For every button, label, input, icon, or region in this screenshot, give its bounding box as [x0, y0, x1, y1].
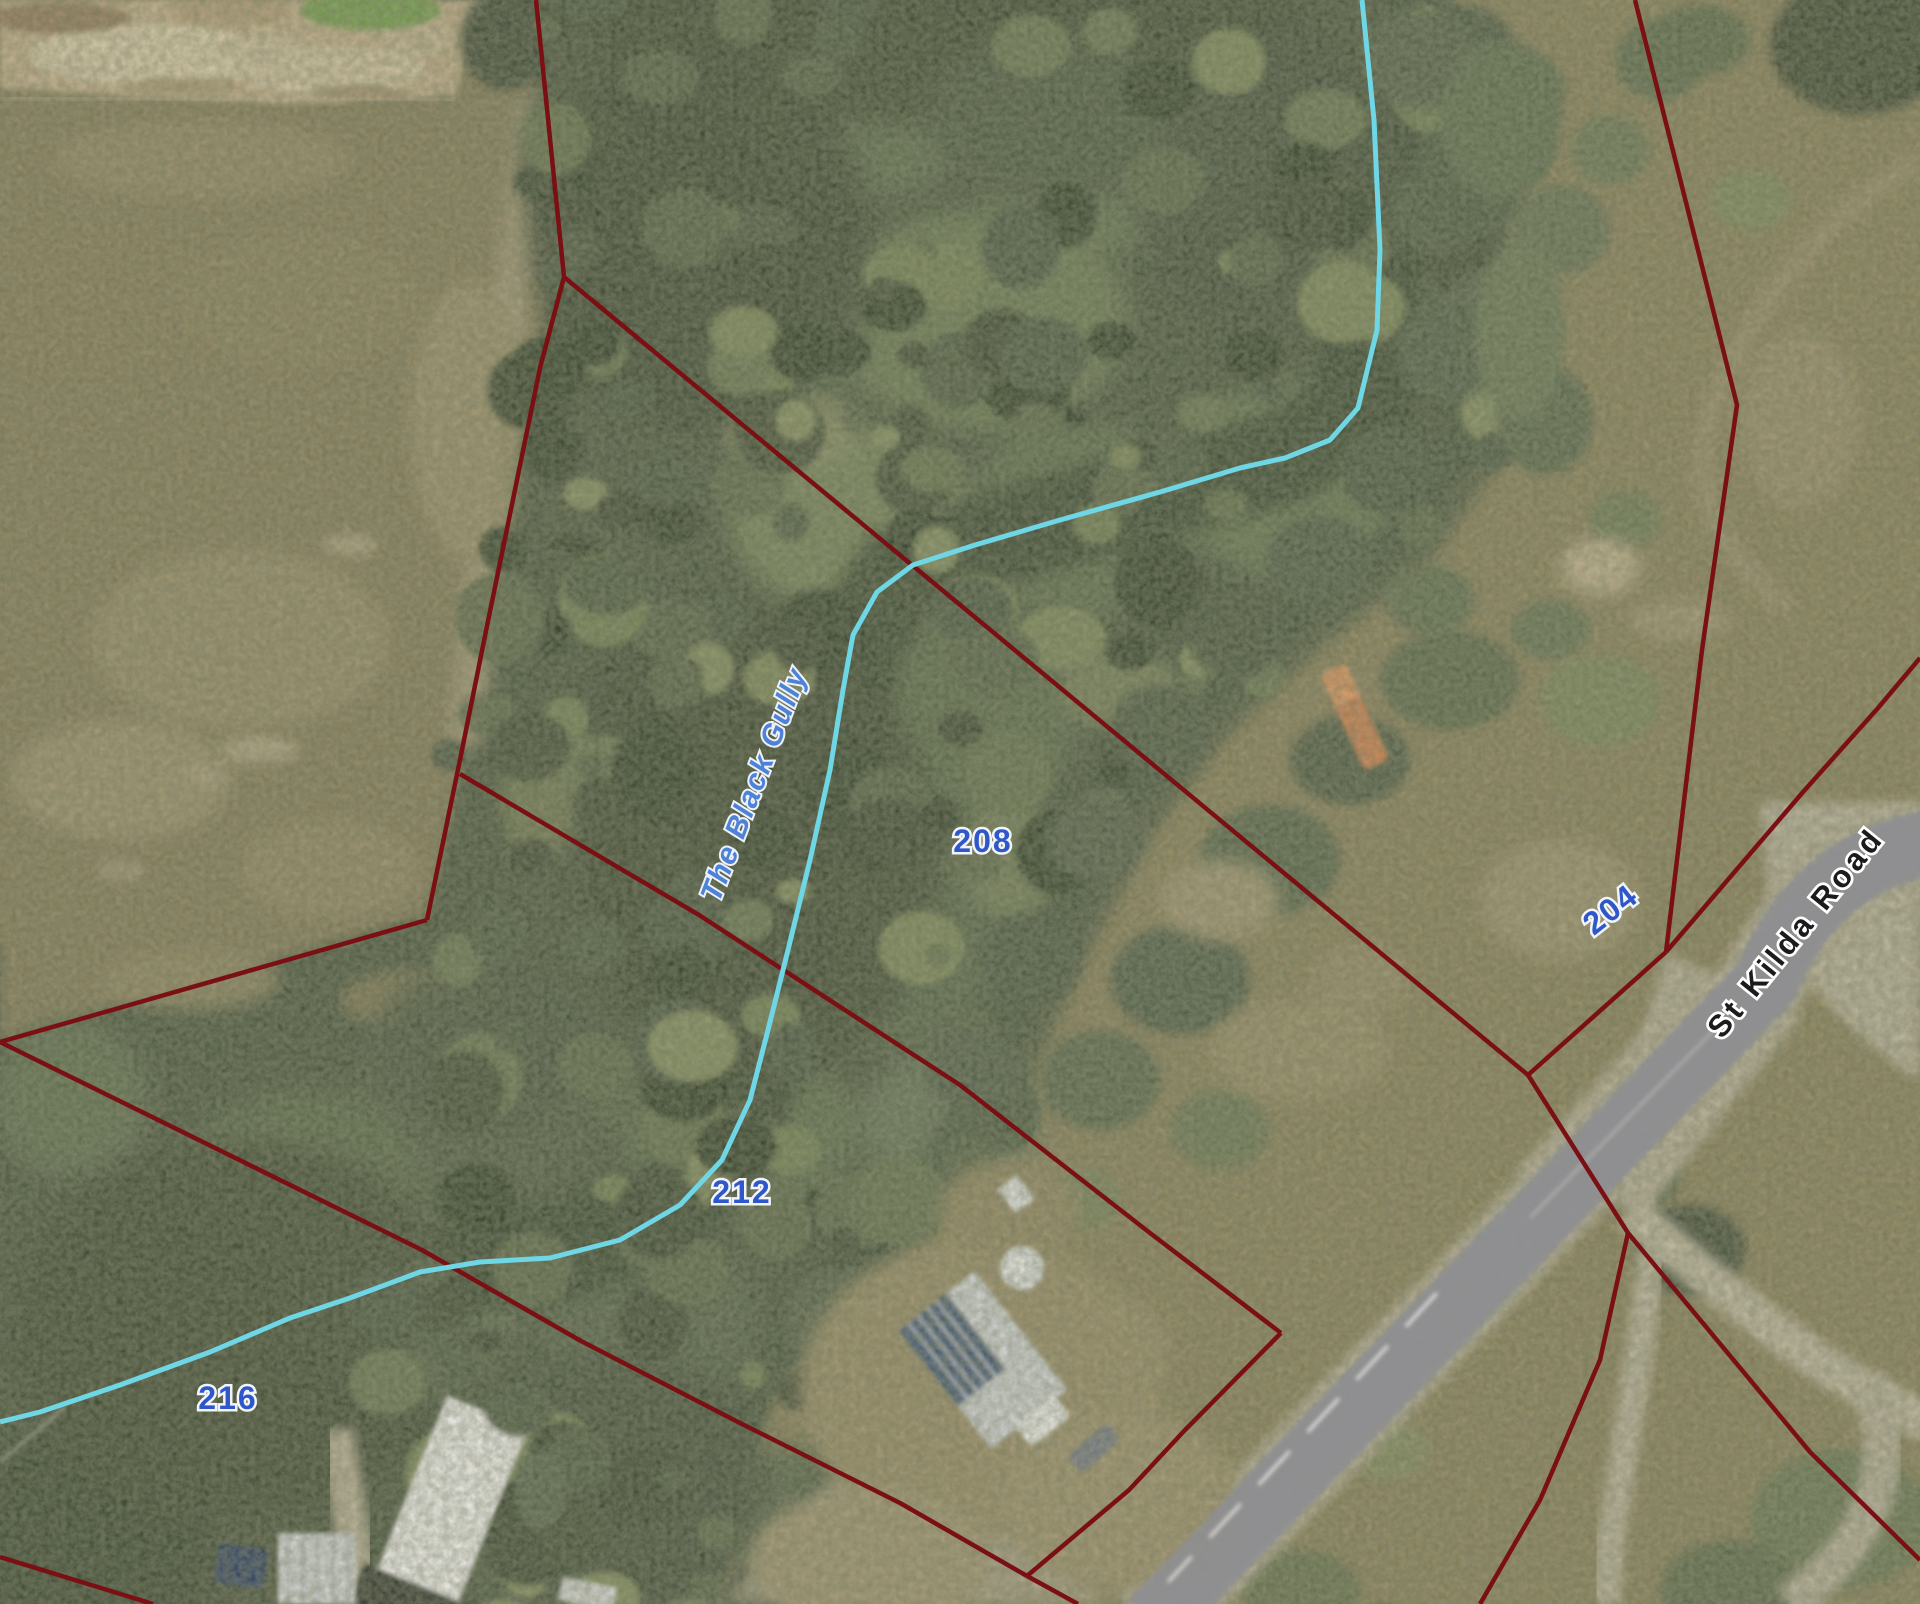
svg-text:208: 208 — [953, 823, 1012, 859]
svg-text:212: 212 — [712, 1174, 771, 1210]
svg-text:216: 216 — [198, 1380, 257, 1416]
